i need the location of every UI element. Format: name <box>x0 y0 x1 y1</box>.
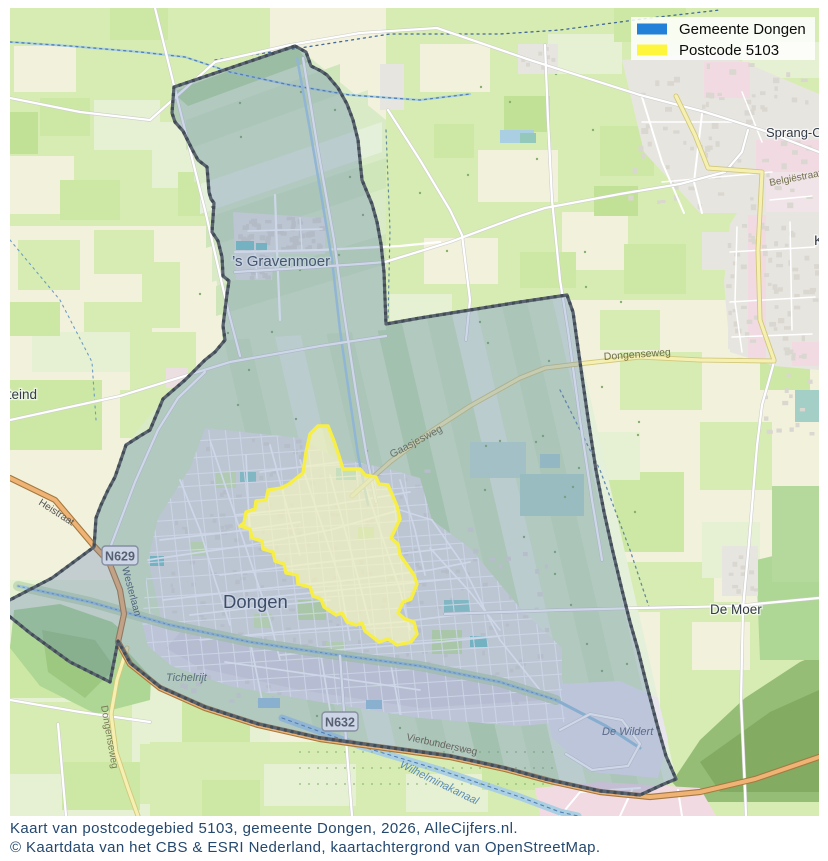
svg-text:Kaart van postcodegebied 5103,: Kaart van postcodegebied 5103, gemeente … <box>10 820 518 837</box>
svg-text:Postcode 5103: Postcode 5103 <box>679 42 779 59</box>
svg-text:Sprang-C: Sprang-C <box>766 125 822 140</box>
svg-text:De Moer: De Moer <box>710 602 762 617</box>
svg-text:Gemeente Dongen: Gemeente Dongen <box>679 21 806 38</box>
svg-text:© Kaartdata van het CBS & ESRI: © Kaartdata van het CBS & ESRI Nederland… <box>10 839 601 856</box>
